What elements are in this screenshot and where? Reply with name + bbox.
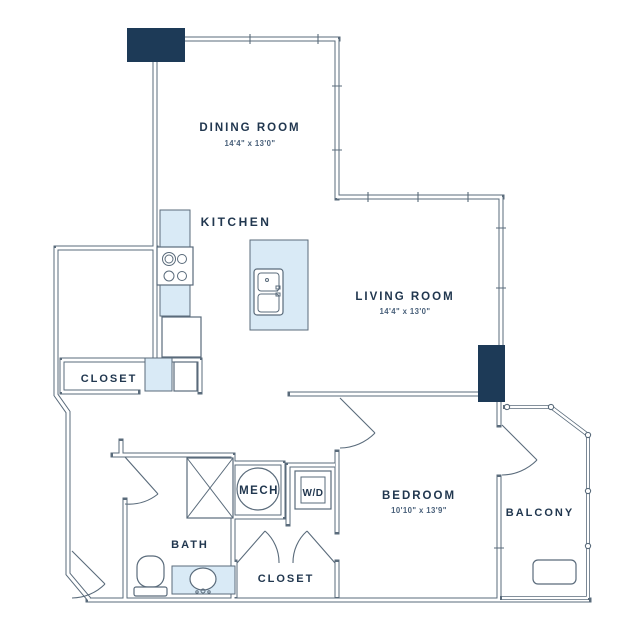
kitchen-fixtures [157,210,308,357]
structural-column [478,345,505,402]
shower-icon [187,458,233,518]
closet-shelf [174,362,197,391]
toilet-icon [134,556,167,596]
entry-closet-label: CLOSET [81,373,138,385]
floor-plan: DINING ROOM 14'4" x 13'0" KITCHEN LIVING… [0,0,629,639]
bedroom-closet-label: CLOSET [258,573,315,585]
refrigerator-icon [162,317,201,357]
bath-fixtures [134,458,235,596]
stove-icon [157,247,193,285]
living-room-label: LIVING ROOM [355,291,454,303]
vanity-sink-icon [172,566,235,594]
dining-room-dims: 14'4" x 13'0" [225,139,276,148]
balcony-equipment-icon [533,560,576,584]
kitchen-island [250,240,308,330]
living-room-dims: 14'4" x 13'0" [380,307,431,316]
balcony-label: BALCONY [506,507,574,519]
structural-column [127,28,185,62]
bedroom-dims: 10'10" x 13'9" [391,506,447,515]
closet-cabinet [145,358,172,391]
bedroom-label: BEDROOM [382,490,456,502]
entry-closet-fixtures [145,358,197,391]
mech-label: MECH [239,485,279,497]
floor-plan-drawing: DINING ROOM 14'4" x 13'0" KITCHEN LIVING… [0,0,629,639]
dining-room-label: DINING ROOM [199,122,300,134]
kitchen-island-sink-icon [254,269,283,315]
bath-label: BATH [171,539,209,551]
kitchen-label: KITCHEN [201,215,272,229]
laundry-label: W/D [303,488,324,499]
